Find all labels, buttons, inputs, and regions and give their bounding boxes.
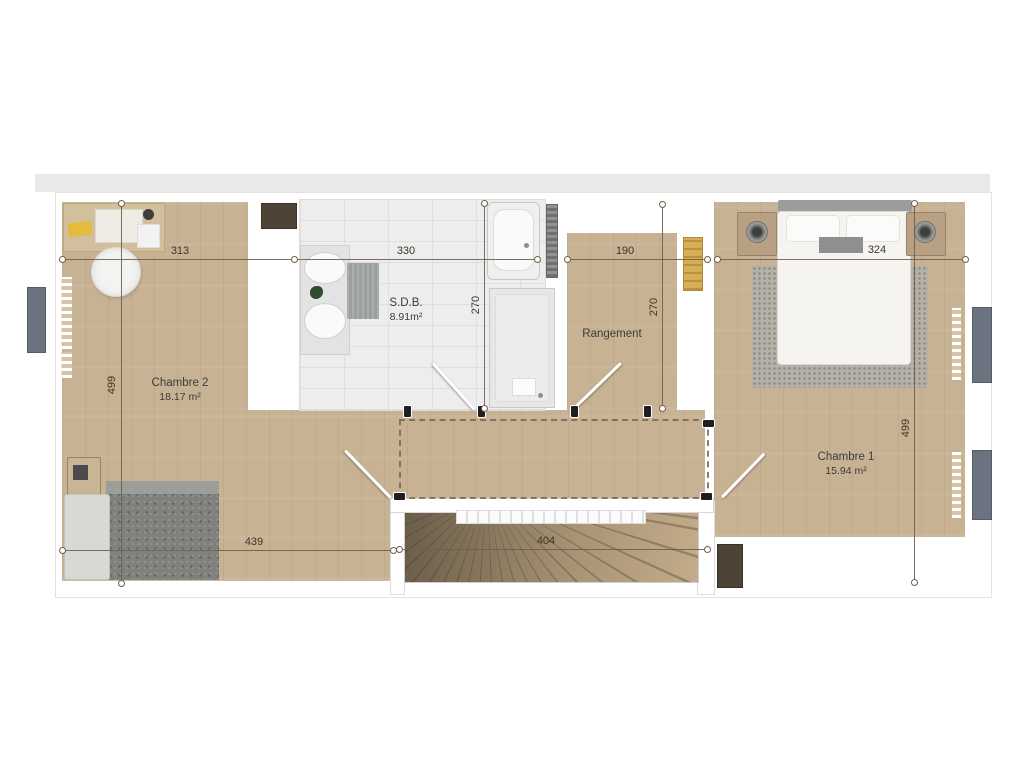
bathtub-faucet-icon: [524, 243, 529, 248]
door-stop: [643, 405, 652, 418]
dimension-line-chambre1-width: [717, 259, 965, 260]
dimension-endpoint: [911, 200, 918, 207]
desk-papers: [95, 209, 143, 243]
shower-seat: [512, 378, 536, 396]
lamp-icon-right: [914, 221, 936, 243]
room-area: 15.94 m²: [784, 465, 908, 479]
dimension-label-chambre2-width: 313: [160, 244, 200, 258]
room-area: 18.17 m²: [118, 391, 242, 405]
dimension-endpoint: [59, 256, 66, 263]
dimension-line-chambre2-width: [62, 259, 294, 260]
room-label-chambre1: Chambre 1 15.94 m²: [784, 450, 908, 479]
dimension-line-sdb-depth: [484, 203, 485, 408]
sloped-ceiling-hatch-right-1: [952, 308, 961, 380]
towel-radiator-icon: [546, 204, 558, 278]
dimension-endpoint: [704, 256, 711, 263]
door-stop: [702, 419, 715, 428]
sloped-ceiling-hatch-left-1: [61, 277, 72, 349]
nightstand-object: [73, 465, 88, 480]
dimension-endpoint: [704, 546, 711, 553]
desk-lamp-icon: [143, 209, 154, 220]
dimension-endpoint: [659, 201, 666, 208]
room-name: S.D.B.: [344, 296, 468, 311]
stair-handrail: [456, 510, 646, 524]
door-stop: [570, 405, 579, 418]
dimension-label-sdb-depth: 270: [469, 285, 483, 325]
bed-chambre2-pillow: [64, 494, 110, 580]
dimension-endpoint: [481, 405, 488, 412]
room-label-chambre2: Chambre 2 18.17 m²: [118, 376, 242, 405]
dimension-line-rangement-depth: [662, 204, 663, 408]
room-label-rangement: Rangement: [550, 327, 674, 342]
door-stop: [403, 405, 412, 418]
dimension-endpoint: [118, 200, 125, 207]
room-area: 8.91m²: [344, 311, 468, 325]
room-name: Rangement: [550, 327, 674, 342]
sloped-ceiling-hatch-left-2: [61, 352, 72, 378]
bathtub-basin: [493, 209, 534, 271]
dimension-endpoint: [564, 256, 571, 263]
sink-icon-2: [304, 303, 346, 339]
sink-icon-1: [304, 252, 346, 284]
bed-chambre2-blanket: [106, 481, 219, 580]
ladder-icon: [683, 237, 703, 291]
window-left: [27, 287, 46, 353]
dimension-line-sdb-width: [294, 259, 537, 260]
chimney-duct-bottom: [717, 544, 743, 588]
dimension-endpoint: [714, 256, 721, 263]
low-ceiling-dashed-line: [399, 419, 709, 499]
dimension-endpoint: [291, 256, 298, 263]
dimension-line-stairs-width: [399, 549, 707, 550]
dimension-endpoint: [659, 405, 666, 412]
sloped-ceiling-hatch-right-2: [952, 452, 961, 518]
shower-drain-icon: [538, 393, 543, 398]
room-name: Chambre 1: [784, 450, 908, 465]
door-stop: [393, 492, 406, 501]
dimension-endpoint: [481, 200, 488, 207]
exterior-top-band: [35, 174, 990, 192]
dimension-label-chambre2-lower: 439: [234, 535, 274, 549]
dimension-endpoint: [962, 256, 969, 263]
desk-notepad: [137, 224, 160, 248]
dimension-endpoint: [118, 580, 125, 587]
door-stop: [700, 492, 713, 501]
dimension-label-rangement-width: 190: [605, 244, 645, 258]
bed-chambre2-frame-top: [106, 481, 219, 494]
chimney-duct-top: [261, 203, 297, 229]
dimension-line-right-depth: [914, 203, 915, 582]
dimension-label-left-depth: 499: [105, 365, 119, 405]
desk-chair: [91, 247, 141, 297]
dimension-endpoint: [534, 256, 541, 263]
dimension-line-rangement-width: [567, 259, 707, 260]
dimension-label-sdb-width: 330: [386, 244, 426, 258]
dimension-endpoint: [59, 547, 66, 554]
dimension-label-rangement-depth: 270: [647, 287, 661, 327]
dimension-label-right-depth: 499: [899, 408, 913, 448]
dimension-label-chambre1-width: 324: [857, 243, 897, 257]
floor-plan: 313 330 190 324 439 404 499 270 270 499 …: [0, 0, 1024, 768]
dimension-label-stairs-width: 404: [526, 534, 566, 548]
lamp-icon-left: [746, 221, 768, 243]
room-name: Chambre 2: [118, 376, 242, 391]
dimension-endpoint: [396, 546, 403, 553]
room-label-sdb: S.D.B. 8.91m²: [344, 296, 468, 325]
dimension-line-chambre2-lower: [62, 550, 393, 551]
window-right-upper: [972, 307, 992, 383]
dimension-endpoint: [911, 579, 918, 586]
window-right-lower: [972, 450, 992, 520]
